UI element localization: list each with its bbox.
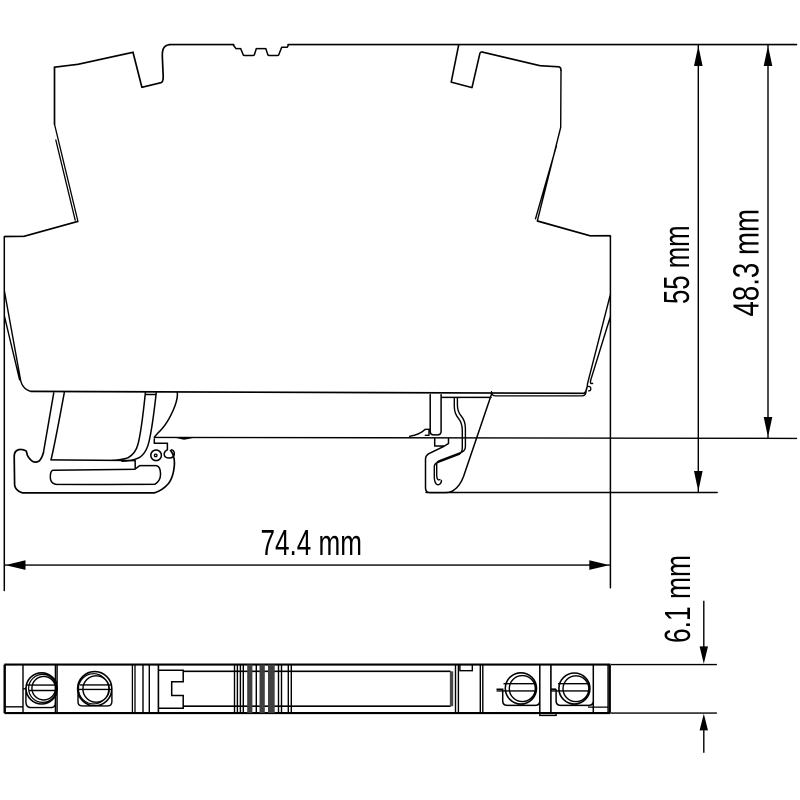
svg-text:6.1 mm: 6.1 mm <box>657 555 698 643</box>
svg-text:74.4 mm: 74.4 mm <box>261 522 363 563</box>
svg-text:55 mm: 55 mm <box>656 226 697 305</box>
svg-text:48.3 mm: 48.3 mm <box>726 209 767 317</box>
